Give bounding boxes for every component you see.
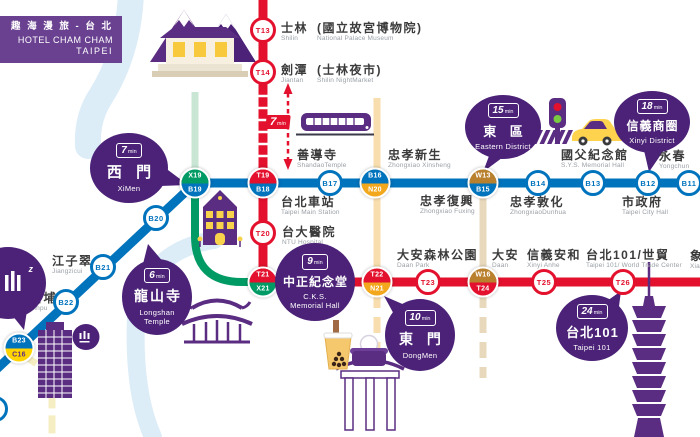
steamer-basket-icon bbox=[350, 336, 388, 367]
minutes-value: 6 bbox=[149, 269, 155, 283]
line-code: X19 bbox=[182, 170, 209, 184]
station-badge-dongmen-t22-n21: T22 N21 bbox=[362, 267, 393, 298]
line-code: C16 bbox=[6, 348, 33, 362]
hotel-name-en: HOTEL CHAM CHAM bbox=[18, 35, 113, 45]
station-badge-b12: B12 bbox=[635, 170, 661, 196]
bubble-name-zh: 台北101 bbox=[566, 322, 619, 341]
transfer-time-chip: 7 min bbox=[265, 115, 290, 129]
minutes-unit: min bbox=[156, 274, 165, 281]
line-code: X21 bbox=[250, 282, 277, 296]
station-badge-b14: B14 bbox=[525, 170, 551, 196]
minutes-unit: min bbox=[314, 260, 323, 267]
red-house-illustration bbox=[198, 190, 243, 247]
line-code: B18 bbox=[250, 183, 277, 197]
travel-time-chip: 18min bbox=[637, 99, 668, 115]
station-label-shandao-temple: 善導寺ShandaoTemple bbox=[297, 149, 347, 170]
station-label-daan: 大安Daan bbox=[492, 249, 519, 270]
minutes-unit: min bbox=[422, 316, 431, 323]
station-label-jiangzicui: 江子翠Jiangzicui bbox=[52, 255, 93, 276]
bubble-name-en: XiMen bbox=[118, 184, 141, 193]
minutes-unit: min bbox=[505, 109, 514, 116]
station-badge-b21: B21 bbox=[90, 254, 116, 280]
line-code: B15 bbox=[470, 183, 497, 197]
bubble-name-en: Xinyi District bbox=[629, 136, 674, 145]
travel-bubble-xinyi-district: 18min 信義商圈 Xinyi District bbox=[614, 91, 690, 153]
station-badge-cks-t21-x21: T21 X21 bbox=[248, 267, 279, 298]
bubble-name-en: Temple bbox=[144, 317, 170, 326]
travel-time-chip: 15min bbox=[488, 103, 519, 119]
bubble-name-en: Taipei 101 bbox=[573, 343, 610, 352]
travel-bubble-cks: 9min 中正紀念堂 C.K.S. Memorial Hall bbox=[275, 243, 355, 321]
sleep-z: z bbox=[29, 264, 34, 274]
line-code: B19 bbox=[182, 183, 209, 197]
station-label-zhongxiao-dunhua: 忠孝敦化ZhongxiaoDunhua bbox=[510, 196, 566, 217]
minutes-value: 10 bbox=[410, 311, 421, 325]
station-badge-fuxing-w13-b15: W13 B15 bbox=[468, 168, 499, 199]
travel-time-chip: 24min bbox=[577, 304, 608, 320]
bubble-name-zh: 東 門 bbox=[399, 329, 446, 349]
metro-map: 趣 海 漫 旅 - 台 北 HOTEL CHAM CHAM TAIPEI 士林S… bbox=[0, 0, 700, 437]
station-label-jiantan: 劍潭Jiantan (士林夜市)Shilin NightMarket bbox=[281, 64, 382, 85]
taipei-101-illustration bbox=[632, 262, 666, 437]
station-badge-t14: T14 bbox=[250, 59, 276, 85]
line-code: T19 bbox=[250, 170, 277, 184]
station-badge-t23: T23 bbox=[415, 269, 441, 295]
station-label-taipei-101-wtc: 台北101/世貿Taipei 101/ World Trade Center bbox=[586, 249, 682, 270]
travel-bubble-longshan: 6min 龍山寺 Longshan Temple bbox=[122, 259, 192, 335]
minutes-unit: min bbox=[277, 121, 287, 127]
station-label-city-hall: 市政府Taipei City Hall bbox=[622, 196, 668, 217]
station-badge-t13: T13 bbox=[250, 17, 276, 43]
travel-bubble-dongmen: 10min 東 門 DongMen bbox=[385, 299, 455, 371]
line-code: B23 bbox=[6, 335, 33, 349]
bubble-name-zh: 東 區 bbox=[483, 121, 528, 140]
hotel-brand-box: 趣 海 漫 旅 - 台 北 HOTEL CHAM CHAM TAIPEI bbox=[0, 16, 122, 63]
station-label-shilin: 士林Shilin (國立故宮博物院)National Palace Museum bbox=[281, 22, 423, 43]
station-label-daan-park: 大安森林公園Daan Park bbox=[397, 249, 478, 270]
minutes-value: 24 bbox=[582, 305, 593, 319]
bubble-name-en: DongMen bbox=[403, 351, 438, 360]
bubble-name-zh: 西 門 bbox=[107, 161, 156, 182]
line-code: T21 bbox=[250, 269, 277, 283]
bubble-name-en: Longshan bbox=[139, 308, 174, 317]
minutes-value: 15 bbox=[493, 104, 504, 118]
minutes-unit: min bbox=[594, 310, 603, 317]
temple-illustration bbox=[182, 301, 252, 343]
line-code: W16 bbox=[470, 269, 497, 283]
station-badge-ximen-x19-b19: X19 B19 bbox=[180, 168, 211, 199]
station-badge-b11: B11 bbox=[676, 170, 700, 196]
station-label-sys-memorial: 國父紀念館S.Y.S. Memorial Hall bbox=[561, 149, 629, 170]
hotel-logo-icon bbox=[78, 330, 94, 344]
station-badge-daan-w16-t24: W16 T24 bbox=[468, 267, 499, 298]
line-code: W13 bbox=[470, 170, 497, 184]
station-badge-t25: T25 bbox=[531, 269, 557, 295]
station-badge-t26: T26 bbox=[610, 269, 636, 295]
station-label-zhongxiao-fuxing: 忠孝復興Zhongxiao Fuxing bbox=[420, 195, 475, 216]
travel-bubble-taipei-101: 24min 台北101 Taipei 101 bbox=[556, 295, 628, 361]
bubble-name-zh: 中正紀念堂 bbox=[283, 273, 348, 290]
travel-time-chip: 9min bbox=[302, 254, 327, 270]
station-label-xinyi-anhe: 信義安和Xinyi Anhe bbox=[527, 249, 581, 270]
bubble-name-zh: 龍山寺 bbox=[134, 286, 182, 306]
bubble-tea-icon bbox=[324, 320, 352, 369]
station-badge-b22: B22 bbox=[53, 289, 79, 315]
station-label-taipei-main: 台北車站Taipei Main Station bbox=[281, 196, 340, 217]
line-code: T24 bbox=[470, 282, 497, 296]
travel-time-chip: 6min bbox=[144, 268, 169, 284]
station-badge-xinsheng-b16-n20: B16 N20 bbox=[360, 168, 391, 199]
line-code: B16 bbox=[362, 170, 389, 184]
hotel-city: TAIPEI bbox=[76, 46, 113, 56]
station-badge-b20: B20 bbox=[143, 205, 169, 231]
travel-time-chip: 7min bbox=[116, 143, 141, 159]
line-code: N20 bbox=[362, 183, 389, 197]
hotel-building-illustration bbox=[38, 322, 72, 398]
station-label-zhongxiao-xinsheng: 忠孝新生Zhongxiao Xinsheng bbox=[388, 149, 451, 170]
hotel-name-zh: 趣 海 漫 旅 - 台 北 bbox=[11, 22, 113, 33]
line-code: N21 bbox=[364, 282, 391, 296]
minutes-unit: min bbox=[128, 149, 137, 156]
station-badge-t20: T20 bbox=[250, 220, 276, 246]
hotel-logo-marker bbox=[73, 324, 100, 350]
minutes-value: 7 bbox=[121, 144, 127, 158]
bubble-name-en: Memorial Hall bbox=[290, 301, 340, 310]
travel-time-chip: 10min bbox=[405, 310, 436, 326]
minutes-value: 18 bbox=[642, 100, 653, 114]
travel-bubble-ximen: 7min 西 門 XiMen bbox=[90, 133, 168, 203]
hotel-logo-icon bbox=[4, 271, 30, 293]
station-label-yongchun: 永春Yongchun bbox=[659, 150, 689, 171]
station-badge-hotel-b23-c16: B23 C16 bbox=[4, 333, 35, 364]
bubble-name-zh: 信義商圈 bbox=[626, 117, 678, 134]
station-badge-b17: B17 bbox=[317, 170, 343, 196]
bubble-name-en: C.K.S. bbox=[303, 292, 326, 301]
bubble-name-en: Eastern District bbox=[475, 142, 531, 151]
station-label-xiangshan: 象山Xiangshan bbox=[690, 250, 700, 271]
line-code: T22 bbox=[364, 269, 391, 283]
station-badge-main-t19-b18: T19 B18 bbox=[248, 168, 279, 199]
train-icon bbox=[296, 113, 374, 135]
station-badge-b13: B13 bbox=[580, 170, 606, 196]
travel-bubble-eastern-district: 15min 東 區 Eastern District bbox=[465, 95, 541, 159]
minutes-unit: min bbox=[654, 105, 663, 112]
mountain-museum-illustration bbox=[150, 10, 256, 77]
minutes-value: 9 bbox=[307, 255, 313, 269]
